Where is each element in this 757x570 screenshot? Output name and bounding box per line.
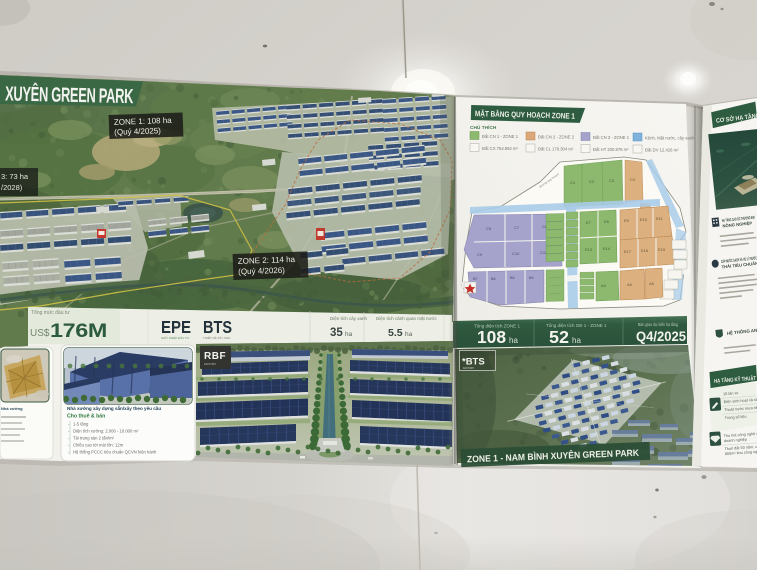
- svg-text:Diện tích cây xanh: Diện tích cây xanh: [330, 316, 368, 321]
- svg-text:XUYÊN GREEN PARK: XUYÊN GREEN PARK: [5, 82, 134, 109]
- svg-text:C4: C4: [630, 177, 636, 182]
- svg-text:E7: E7: [586, 220, 592, 225]
- svg-text:A6: A6: [649, 281, 655, 286]
- svg-text:(Quý 4/2025): (Quý 4/2025): [114, 126, 161, 137]
- svg-text:Đất HT 200.876 m²: Đất HT 200.876 m²: [593, 147, 629, 152]
- svg-text:Đất DV 12.426 m²: Đất DV 12.426 m²: [645, 148, 679, 153]
- svg-text:Đất CN 1 - ZONE 1: Đất CN 1 - ZONE 1: [482, 134, 519, 139]
- svg-text:FACTORY: FACTORY: [463, 367, 475, 370]
- svg-text:1-5 tầng: 1-5 tầng: [73, 422, 89, 427]
- svg-text:E17: E17: [624, 249, 632, 254]
- svg-text:B5: B5: [510, 276, 515, 280]
- svg-text:Nhà xưởng: Nhà xưởng: [1, 406, 23, 411]
- svg-text:Hệ thống PCCC tiêu chuẩn QCVN: Hệ thống PCCC tiêu chuẩn QCVN hiện hành: [73, 450, 157, 455]
- svg-text:EPE: EPE: [161, 317, 191, 337]
- svg-text:B7: B7: [473, 277, 478, 281]
- svg-text:E14: E14: [603, 246, 611, 251]
- svg-text:C7: C7: [514, 225, 520, 230]
- svg-text:C9: C9: [477, 252, 483, 257]
- svg-text:A5: A5: [627, 282, 633, 287]
- svg-text:E15: E15: [658, 247, 666, 252]
- svg-text:Kênh, Mặt nước, cây xanh: Kênh, Mặt nước, cây xanh: [645, 136, 695, 141]
- svg-text:E16: E16: [641, 248, 649, 253]
- svg-text:E11: E11: [656, 216, 664, 221]
- svg-text:E9: E9: [624, 218, 630, 223]
- svg-text:/2028): /2028): [1, 183, 23, 192]
- svg-text:Tải trọng sàn 2 tấn/m²: Tải trọng sàn 2 tấn/m²: [73, 436, 115, 441]
- svg-text:Đất CN 3 - ZONE 1: Đất CN 3 - ZONE 1: [593, 135, 630, 140]
- svg-text:ha: ha: [509, 336, 518, 345]
- svg-text:FACTORY: FACTORY: [204, 362, 216, 366]
- svg-text:108: 108: [477, 327, 506, 347]
- svg-text:ha: ha: [405, 331, 413, 338]
- svg-text:C10: C10: [512, 251, 520, 256]
- svg-text:C2: C2: [589, 179, 595, 184]
- svg-text:A4: A4: [601, 283, 607, 288]
- svg-text:Đất CX 754.992 m²: Đất CX 754.992 m²: [482, 146, 518, 151]
- svg-text:C1: C1: [570, 180, 576, 185]
- svg-text:B6: B6: [491, 277, 496, 281]
- svg-text:Đất CL 178.304 m²: Đất CL 178.304 m²: [538, 147, 574, 152]
- svg-text:C5: C5: [486, 226, 492, 231]
- svg-text:Diện tích cảnh quan mặt nước: Diện tích cảnh quan mặt nước: [376, 316, 437, 321]
- svg-text:C3: C3: [609, 178, 615, 183]
- svg-text:US$: US$: [30, 328, 50, 339]
- svg-text:E13: E13: [585, 247, 593, 252]
- svg-text:BTS: BTS: [203, 317, 232, 337]
- svg-text:Tổng mức đầu tư: Tổng mức đầu tư: [31, 309, 70, 316]
- svg-text:E10: E10: [640, 217, 648, 222]
- svg-text:35: 35: [330, 327, 343, 339]
- svg-text:3: 73 ha: 3: 73 ha: [1, 172, 29, 181]
- svg-text:ha: ha: [345, 331, 353, 338]
- svg-text:Cho thuê & bán: Cho thuê & bán: [67, 414, 105, 420]
- svg-text:Q4/2025: Q4/2025: [636, 329, 686, 344]
- svg-text:THIẾT KẾ XÂY SẴN: THIẾT KẾ XÂY SẴN: [203, 335, 230, 340]
- svg-text:GIẤY PHÉP ĐẦU TƯ: GIẤY PHÉP ĐẦU TƯ: [161, 335, 190, 340]
- svg-text:5.5: 5.5: [388, 327, 403, 339]
- svg-text:Diện tích xưởng: 2.000 - 10.00: Diện tích xưởng: 2.000 - 10.000 m²: [73, 429, 139, 434]
- svg-text:Đất CN 2 - ZONE 2: Đất CN 2 - ZONE 2: [538, 135, 575, 140]
- svg-text:ha: ha: [572, 336, 581, 345]
- svg-text:E8: E8: [604, 219, 610, 224]
- svg-text:RBF: RBF: [204, 351, 226, 362]
- svg-text:Nhà xưởng xây dựng sẵn/xây the: Nhà xưởng xây dựng sẵn/xây theo yêu cầu: [67, 405, 161, 411]
- svg-text:(Quý 4/2026): (Quý 4/2026): [238, 266, 285, 277]
- svg-text:52: 52: [549, 327, 569, 347]
- svg-text:176M: 176M: [50, 320, 107, 342]
- svg-text:Bàn giao dự kiến hạ tầng: Bàn giao dự kiến hạ tầng: [638, 322, 679, 327]
- svg-text:Chiều cao tới mái tôn: 12m: Chiều cao tới mái tôn: 12m: [73, 443, 124, 448]
- svg-text:B4: B4: [529, 276, 534, 280]
